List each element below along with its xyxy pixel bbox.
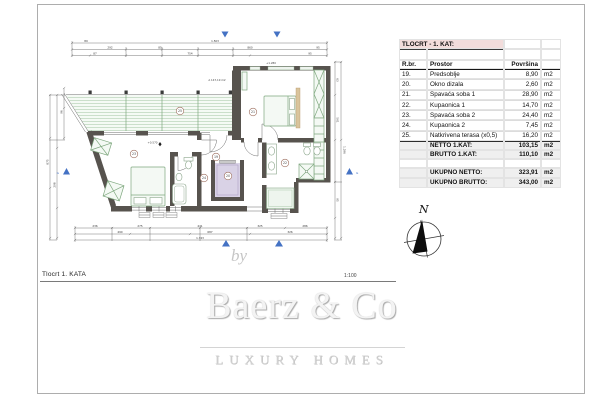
svg-text:275: 275 — [137, 224, 142, 228]
north-label: N — [418, 203, 429, 216]
svg-text:G: G — [356, 171, 359, 175]
bathroom-1-fixtures — [267, 143, 321, 179]
window-sill-boxes — [139, 213, 287, 219]
bottom-dimension-lines: 236 275 441 325 286 490 687 326 1.743 — [74, 224, 328, 242]
svg-text:85: 85 — [158, 45, 162, 49]
svg-text:21: 21 — [251, 110, 255, 114]
svg-text:25: 25 — [178, 109, 182, 113]
svg-text:326: 326 — [287, 230, 292, 234]
svg-text:G: G — [57, 171, 60, 175]
bed-1 — [264, 88, 300, 128]
svg-text:236: 236 — [92, 224, 97, 228]
svg-text:20: 20 — [226, 174, 230, 178]
svg-text:23: 23 — [132, 152, 136, 156]
room-area-label: A 147,19 m2 — [208, 78, 226, 82]
bed-2 — [131, 167, 165, 206]
area-table: TLOCRT - 1. KAT: R.br. Prostor Površina … — [399, 40, 561, 187]
left-dimension-lines: 875 96 298 — [46, 87, 66, 240]
section-marker-icon — [63, 168, 70, 175]
svg-text:687: 687 — [207, 230, 212, 234]
svg-text:95: 95 — [336, 198, 340, 202]
logo-by-text: by — [231, 246, 247, 266]
svg-text:1.503: 1.503 — [211, 39, 219, 43]
svg-text:441: 441 — [197, 224, 202, 228]
closet-1 — [242, 72, 247, 90]
terrace-hatched-area — [62, 91, 233, 133]
elevator-door — [220, 160, 236, 163]
svg-text:292: 292 — [107, 45, 112, 49]
sink-icon — [268, 147, 274, 155]
small-covered-terrace-room — [267, 188, 295, 209]
top-wall-windows — [250, 67, 313, 70]
wardrobe-right — [314, 70, 324, 180]
level-marker: +0.570 — [148, 141, 162, 147]
svg-text:89: 89 — [84, 39, 88, 43]
svg-text:87: 87 — [93, 51, 97, 55]
section-marker-icon — [222, 32, 229, 38]
svg-text:1.743: 1.743 — [196, 236, 204, 240]
toilet-icon — [304, 147, 310, 155]
svg-text:95: 95 — [308, 51, 312, 55]
logo-tagline: LUXURY HOMES — [194, 352, 410, 368]
floor-plan: 89 1.503 292 85 860 95 87 754 95 875 96 … — [40, 28, 395, 250]
svg-text:19: 19 — [214, 155, 218, 159]
svg-text:95: 95 — [316, 45, 320, 49]
drawing-title: Tlocrt 1. KATA — [42, 271, 86, 278]
shower-icon — [299, 164, 314, 179]
grand-total-brutto-row: UKUPNO BRUTTO: 343,00 m2 — [399, 178, 561, 188]
section-marker-icon — [222, 240, 230, 247]
right-dimension-lines: 63 501 95 1.296 — [334, 61, 347, 240]
svg-text:1.296: 1.296 — [343, 146, 347, 154]
svg-text:325: 325 — [257, 224, 262, 228]
section-marker-icon — [346, 168, 353, 175]
svg-text:501: 501 — [336, 117, 340, 122]
svg-text:24: 24 — [202, 176, 206, 180]
bidet-icon — [314, 147, 320, 155]
svg-text:63: 63 — [336, 78, 340, 82]
top-dimension-lines: 89 1.503 292 85 860 95 87 754 95 — [71, 39, 328, 57]
svg-text:490: 490 — [117, 230, 122, 234]
level-label: +1.280 — [266, 61, 276, 65]
section-marker-icon — [274, 32, 281, 38]
svg-text:286: 286 — [302, 224, 307, 228]
screenshot-root: 89 1.503 292 85 860 95 87 754 95 875 96 … — [0, 0, 600, 400]
sink-icon — [176, 173, 182, 181]
north-arrow-icon: N — [396, 196, 456, 264]
headboard-panel — [296, 88, 300, 128]
svg-text:+0.570: +0.570 — [148, 141, 158, 145]
svg-text:96: 96 — [60, 110, 64, 114]
toilet-icon — [186, 161, 192, 169]
svg-text:754: 754 — [187, 51, 192, 55]
svg-text:860: 860 — [247, 45, 252, 49]
title-underline — [40, 281, 396, 282]
terrace-posts — [89, 91, 233, 95]
svg-text:298: 298 — [53, 182, 57, 187]
svg-text:22: 22 — [283, 161, 287, 165]
sink-icon — [268, 162, 274, 170]
svg-text:875: 875 — [46, 159, 50, 164]
logo-brand-name: Baerz & Co — [196, 284, 408, 328]
logo-divider — [200, 347, 405, 348]
bathroom-2-fixtures — [173, 158, 194, 205]
section-marker-icon — [275, 240, 283, 247]
drawing-scale: 1:100 — [344, 273, 357, 279]
